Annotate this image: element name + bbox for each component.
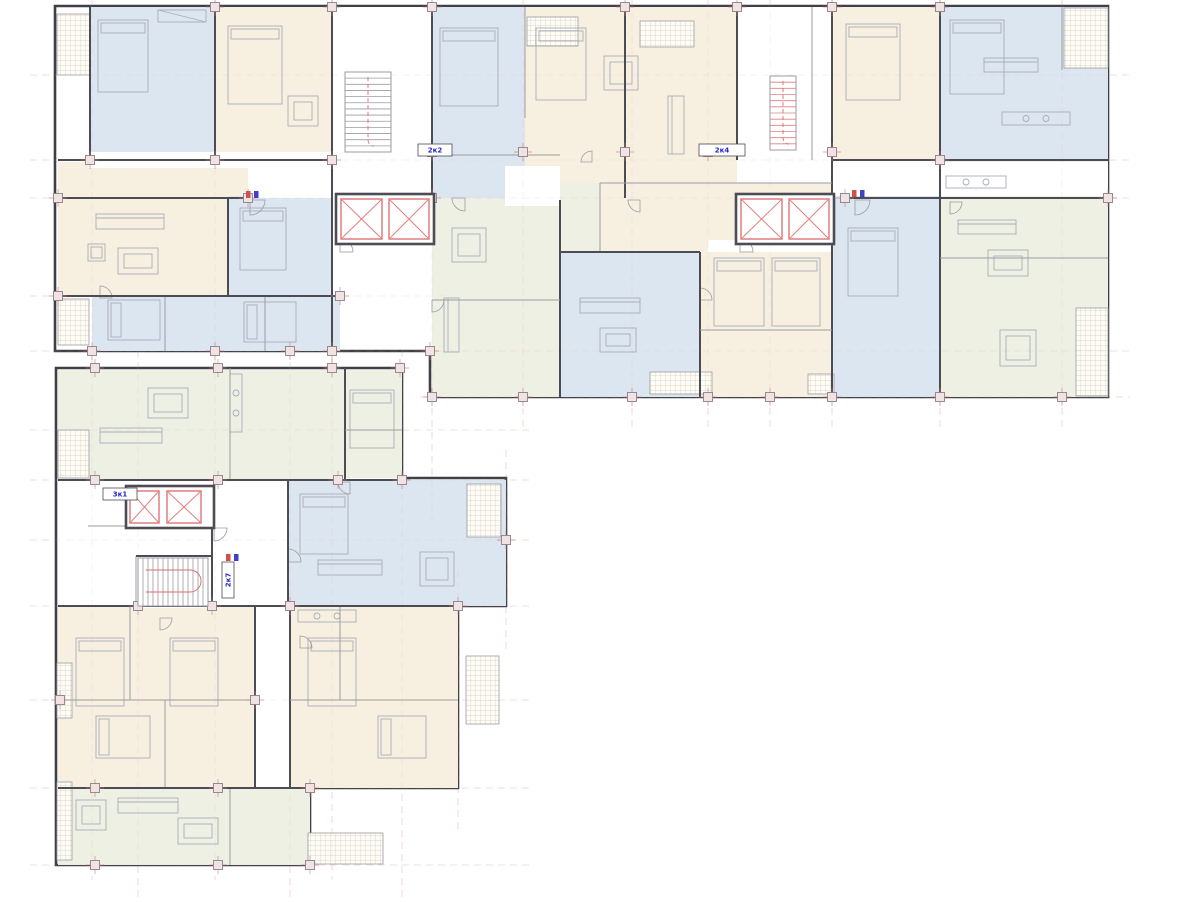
column <box>428 3 437 12</box>
column <box>211 347 220 356</box>
column <box>88 347 97 356</box>
meter-mark-red <box>852 190 857 197</box>
column <box>91 784 100 793</box>
column <box>336 292 345 301</box>
balcony-hatch <box>640 21 694 47</box>
column <box>628 393 637 402</box>
floor-plan-canvas: 2к22к43к12к7 <box>0 0 1180 902</box>
column <box>841 194 850 203</box>
column <box>936 156 945 165</box>
column <box>211 3 220 12</box>
column <box>621 148 630 157</box>
balcony-hatch <box>467 484 501 537</box>
column <box>1104 194 1113 203</box>
column <box>306 784 315 793</box>
column <box>54 194 63 203</box>
column <box>396 364 405 373</box>
column <box>251 696 260 705</box>
apartment-label: 3к1 <box>113 491 128 499</box>
column <box>214 364 223 373</box>
column <box>828 148 837 157</box>
column <box>214 861 223 870</box>
room-zone-cream <box>600 183 708 252</box>
corridor-area <box>845 162 1108 196</box>
column <box>91 861 100 870</box>
column <box>211 156 220 165</box>
column <box>86 156 95 165</box>
balcony-hatch <box>1064 8 1108 68</box>
balcony-hatch <box>650 372 712 394</box>
apartment-label: 2к7 <box>225 573 233 588</box>
corridor-area <box>505 166 560 206</box>
balcony-hatch <box>57 782 72 860</box>
column <box>398 476 407 485</box>
floor-plan-svg: 2к22к43к12к7 <box>0 0 1180 902</box>
room-zone-cream <box>58 606 255 788</box>
column <box>766 393 775 402</box>
balcony-hatch <box>57 14 90 75</box>
room-zone-green <box>58 370 345 480</box>
column <box>828 3 837 12</box>
room-zone-green <box>432 198 560 397</box>
room-zone-green <box>560 183 600 252</box>
meter-mark-blue <box>254 191 259 198</box>
column <box>1058 393 1067 402</box>
meter-mark-blue <box>234 554 239 561</box>
column <box>828 393 837 402</box>
balcony-hatch <box>58 430 89 478</box>
balcony-hatch <box>527 17 578 46</box>
column <box>621 3 630 12</box>
column <box>286 347 295 356</box>
column <box>428 393 437 402</box>
column <box>214 784 223 793</box>
column <box>328 156 337 165</box>
column <box>704 393 713 402</box>
room-zone-cream <box>290 606 458 788</box>
column <box>306 861 315 870</box>
balcony-hatch <box>58 299 89 345</box>
column <box>519 148 528 157</box>
column <box>54 292 63 301</box>
room-zone-green <box>345 370 402 478</box>
column <box>519 393 528 402</box>
column <box>286 602 295 611</box>
column <box>56 696 65 705</box>
column <box>208 602 217 611</box>
column <box>454 602 463 611</box>
column <box>502 536 511 545</box>
balcony-hatch <box>1076 308 1108 396</box>
balcony-hatch <box>57 663 72 718</box>
apartment-label: 2к2 <box>428 147 443 155</box>
meter-mark-blue <box>860 190 865 197</box>
room-zone-blue <box>832 196 940 397</box>
column <box>328 347 337 356</box>
apartment-label: 2к4 <box>715 147 730 155</box>
column <box>936 393 945 402</box>
corridor-area <box>214 480 288 526</box>
column <box>936 3 945 12</box>
column <box>328 364 337 373</box>
room-zone-cream <box>832 7 940 160</box>
room-zone-cream <box>215 7 332 160</box>
column <box>328 3 337 12</box>
balcony-hatch <box>466 656 499 724</box>
column <box>426 347 435 356</box>
column <box>733 3 742 12</box>
room-zone-blue <box>90 7 215 160</box>
room-zone-blue <box>92 296 340 351</box>
meter-mark-red <box>226 554 231 561</box>
column <box>91 364 100 373</box>
column <box>334 476 343 485</box>
column <box>91 476 100 485</box>
column <box>214 476 223 485</box>
balcony-hatch <box>308 833 383 864</box>
meter-mark-red <box>246 191 251 198</box>
balcony-hatch <box>808 374 834 394</box>
